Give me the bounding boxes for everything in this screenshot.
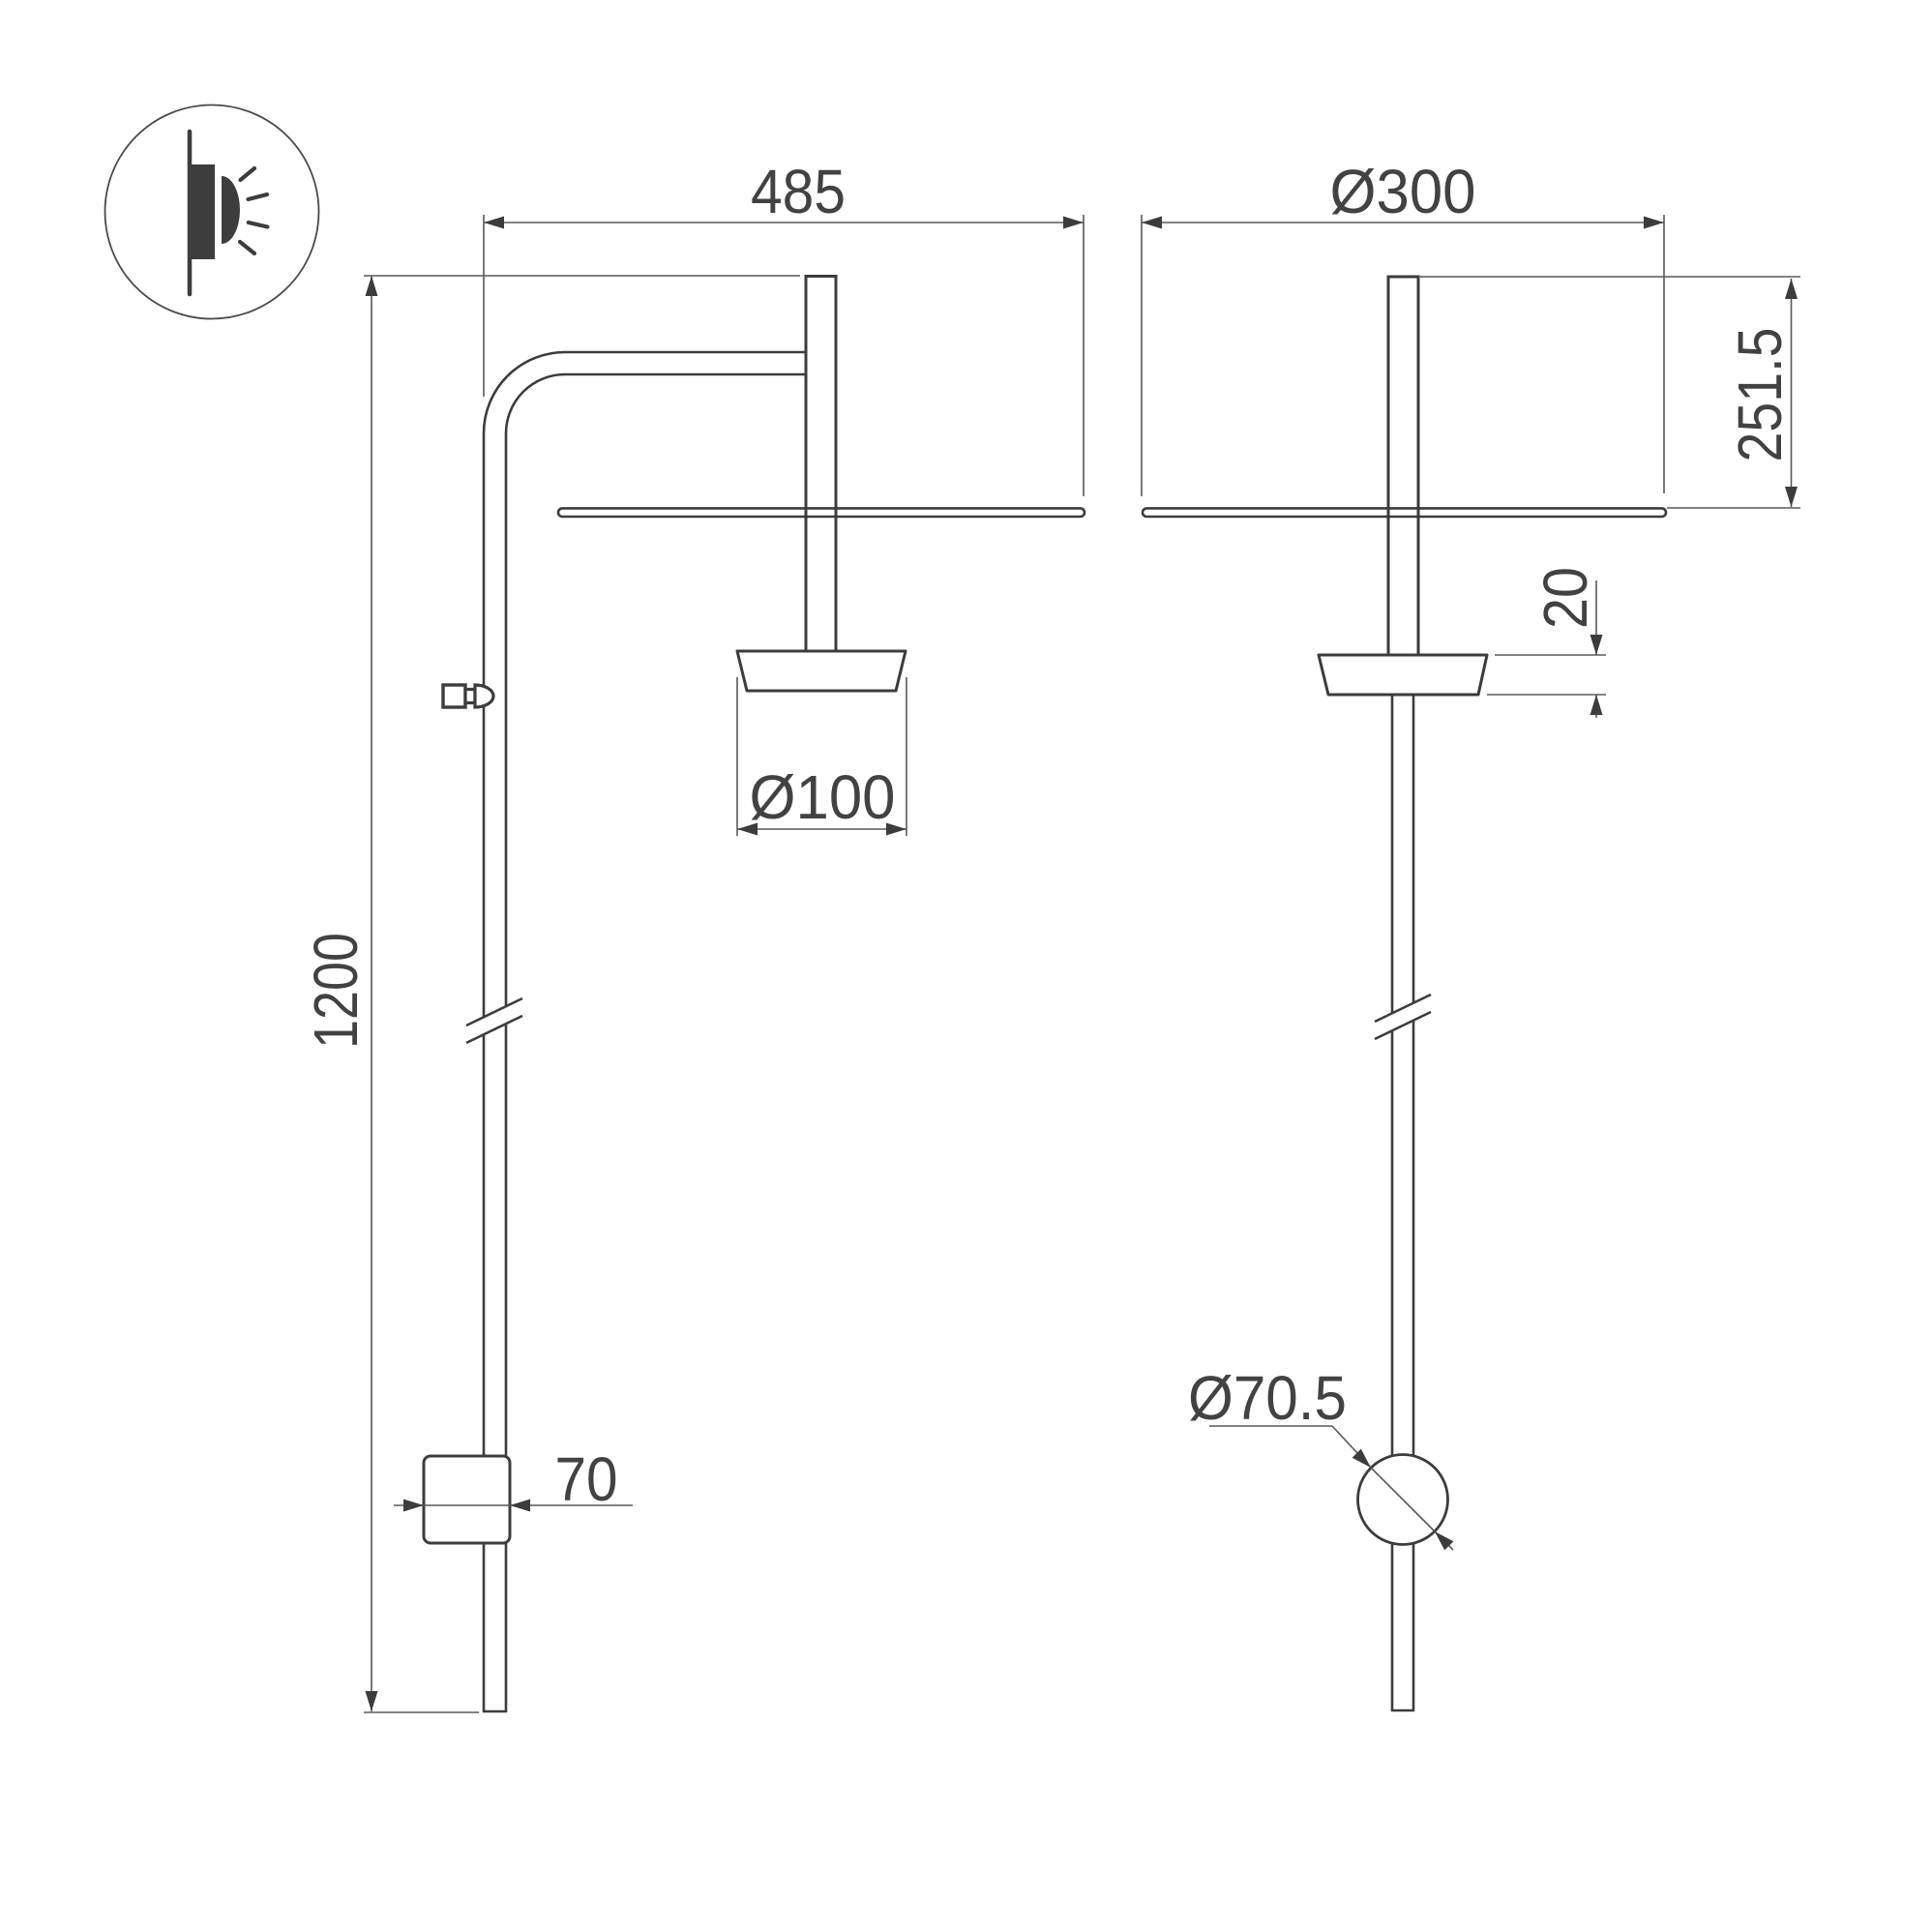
svg-text:Ø70.5: Ø70.5	[1188, 1363, 1347, 1433]
svg-text:20: 20	[1531, 567, 1600, 629]
svg-text:251.5: 251.5	[1725, 328, 1795, 462]
svg-text:1200: 1200	[301, 933, 371, 1049]
svg-text:Ø100: Ø100	[750, 762, 896, 832]
svg-text:70: 70	[555, 1444, 618, 1514]
svg-text:485: 485	[751, 157, 846, 226]
svg-text:Ø300: Ø300	[1330, 157, 1476, 226]
